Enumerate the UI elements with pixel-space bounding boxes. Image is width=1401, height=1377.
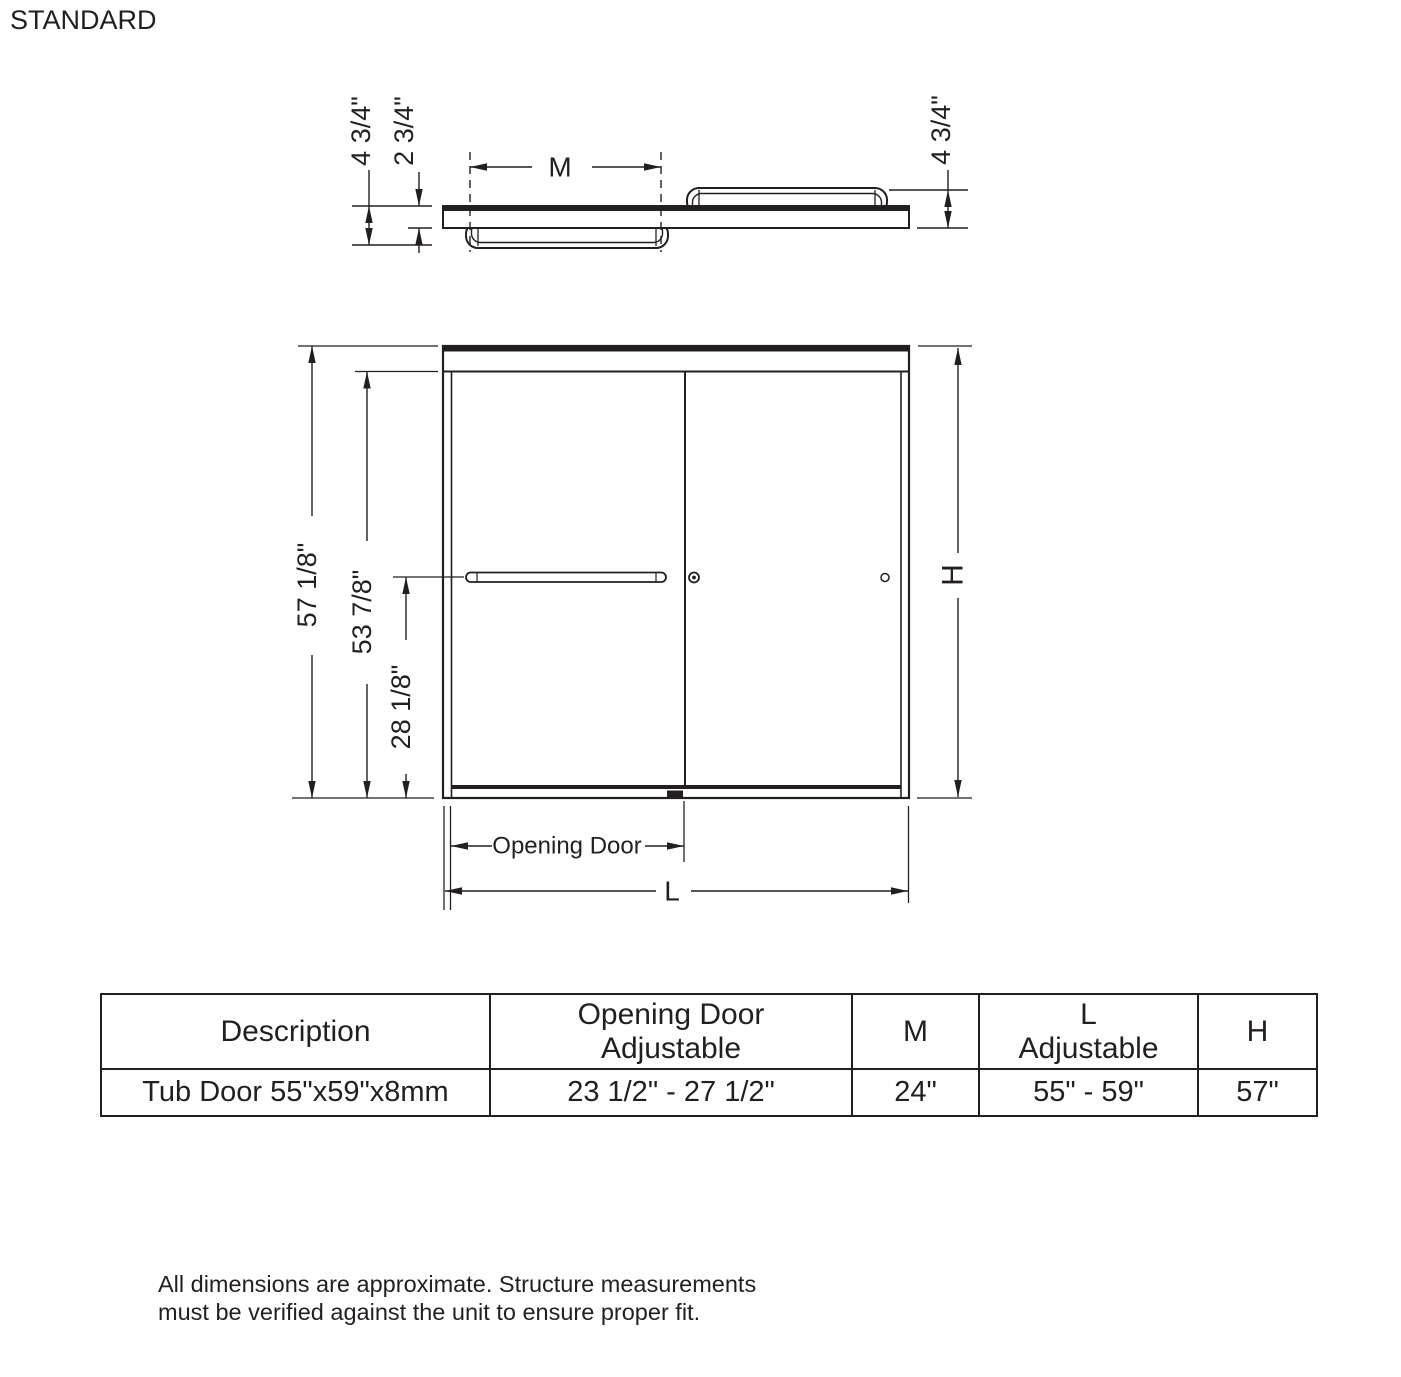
front-dim-length-label: L (664, 876, 680, 907)
plan-dim-M-label: M (548, 152, 571, 183)
front-towel-bar (466, 573, 666, 583)
spec-sheet: STANDARD (0, 0, 1401, 1377)
spec-table-header-row: Description Opening DoorAdjustable M LAd… (101, 994, 1317, 1069)
technical-drawing: M 4 3/4" 2 3/4" 4 3/4" (0, 0, 1401, 960)
col-header-m: M (852, 994, 979, 1069)
cell-opening-door: 23 1/2" - 27 1/2" (490, 1069, 852, 1116)
footnote-line-1: All dimensions are approximate. Structur… (158, 1270, 756, 1298)
front-dim-towel-bar-height-label: 28 1/8" (386, 665, 416, 750)
plan-rail (443, 206, 909, 228)
cell-h: 57" (1198, 1069, 1317, 1116)
plan-dim-left (352, 170, 432, 253)
front-door-knob-left (689, 573, 699, 583)
cell-description: Tub Door 55"x59"x8mm (101, 1069, 490, 1116)
footnote-line-2: must be verified against the unit to ens… (158, 1298, 756, 1326)
front-bottom-guide (667, 791, 683, 799)
front-dim-opening-label: Opening Door (492, 833, 641, 860)
footnote: All dimensions are approximate. Structur… (158, 1270, 756, 1326)
cell-m: 24" (852, 1069, 979, 1116)
front-view: 57 1/8" 53 7/8" 28 1/8" H Opening Door L (292, 346, 972, 910)
front-door-knob-right (881, 574, 889, 582)
spec-table-data-row: Tub Door 55"x59"x8mm 23 1/2" - 27 1/2" 2… (101, 1069, 1317, 1116)
plan-dim-right-label: 4 3/4" (926, 95, 956, 165)
plan-dim-left-outer-label: 4 3/4" (346, 96, 376, 166)
col-header-h: H (1198, 994, 1317, 1069)
plan-view: M 4 3/4" 2 3/4" 4 3/4" (346, 95, 968, 253)
front-dim-H-label: H (937, 564, 970, 586)
front-dim-total-height-label: 57 1/8" (292, 543, 322, 628)
col-header-description: Description (101, 994, 490, 1069)
front-dim-panel-height-label: 53 7/8" (347, 570, 377, 655)
cell-l: 55" - 59" (979, 1069, 1198, 1116)
col-header-l: LAdjustable (979, 994, 1198, 1069)
plan-dim-left-inner-label: 2 3/4" (389, 96, 419, 166)
spec-table: Description Opening DoorAdjustable M LAd… (100, 993, 1318, 1117)
col-header-opening-door: Opening DoorAdjustable (490, 994, 852, 1069)
